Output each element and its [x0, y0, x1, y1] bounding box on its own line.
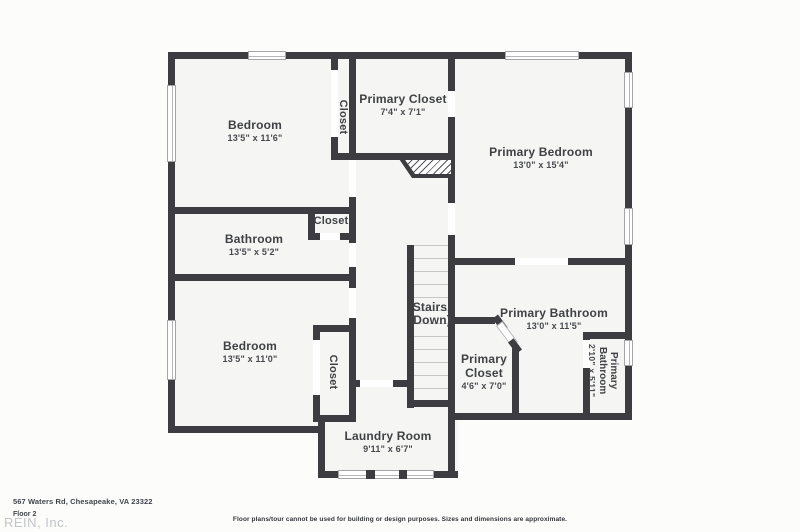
- window: [248, 51, 286, 60]
- stairs-line-2: (Down): [409, 314, 451, 327]
- window: [338, 470, 434, 479]
- room-label-primary-closet-small: Primary Closet 4'6" x 7'0": [449, 352, 519, 392]
- room-dimensions: 13'5" x 11'6": [228, 132, 283, 144]
- wall: [331, 153, 455, 160]
- room-label-primary-closet: Primary Closet 7'4" x 7'1": [359, 92, 447, 118]
- room-name: Bedroom: [228, 118, 283, 132]
- room-label-stairs: Stairs (Down): [409, 301, 451, 327]
- door-opening: [349, 160, 356, 197]
- door-opening: [448, 203, 455, 235]
- room-name: Primary Bedroom: [489, 145, 593, 159]
- room-label-closet-bathroom: Closet: [314, 215, 349, 227]
- room-name: Primary Bathroom: [500, 306, 608, 320]
- window: [624, 208, 633, 245]
- room-name: Primary Closet: [359, 92, 447, 106]
- wall: [313, 325, 320, 340]
- wall: [448, 59, 455, 91]
- wall: [448, 117, 455, 153]
- door-opening: [360, 380, 393, 387]
- room-name: Laundry Room: [344, 429, 431, 443]
- room-name: Primary Closet: [449, 352, 519, 380]
- room-dimensions: 13'5" x 11'0": [223, 353, 278, 365]
- wall: [168, 426, 325, 433]
- room-label-closet-bedroom-2: Closet: [327, 355, 339, 390]
- room-dimensions: 2'10" x 5'11": [587, 328, 597, 414]
- wall: [451, 413, 632, 420]
- wall: [455, 317, 495, 324]
- wall: [448, 175, 455, 203]
- window: [167, 320, 176, 380]
- room-dimensions: 13'0" x 15'4": [489, 159, 593, 171]
- floor-plan: Bedroom 13'5" x 11'6" Closet Primary Clo…: [0, 0, 800, 532]
- room-label-primary-bedroom: Primary Bedroom 13'0" x 15'4": [489, 145, 593, 171]
- room-name: Primary Bathroom: [597, 328, 619, 414]
- room-label-laundry: Laundry Room 9'11" x 6'7": [344, 429, 431, 455]
- door-opening: [320, 233, 340, 240]
- wall: [331, 59, 338, 70]
- room-label-bathroom: Bathroom 13'5" x 5'2": [225, 232, 283, 258]
- floor-area: [175, 413, 325, 426]
- room-name: Bedroom: [223, 339, 278, 353]
- wall: [175, 207, 356, 214]
- wall: [349, 318, 356, 422]
- wall: [568, 258, 632, 265]
- disclaimer-text: Floor plans/tour cannot be used for buil…: [0, 516, 800, 523]
- window: [505, 51, 579, 60]
- door-opening: [349, 288, 356, 318]
- room-label-bedroom-1: Bedroom 13'5" x 11'6": [228, 118, 283, 144]
- wall: [407, 400, 455, 407]
- wall: [318, 419, 325, 478]
- address-text: 567 Waters Rd, Chesapeake, VA 23322: [13, 497, 153, 506]
- room-label-primary-bathroom-small: Primary Bathroom 2'10" x 5'11": [587, 328, 619, 414]
- room-dimensions: 4'6" x 7'0": [449, 380, 519, 392]
- wall: [349, 380, 360, 387]
- wall: [349, 59, 356, 160]
- room-label-closet-top: Closet: [337, 100, 349, 135]
- room-label-bedroom-2: Bedroom 13'5" x 11'0": [223, 339, 278, 365]
- door-opening: [515, 258, 568, 265]
- wall: [455, 258, 515, 265]
- window: [167, 85, 176, 162]
- door-opening: [349, 243, 356, 267]
- room-dimensions: 13'5" x 5'2": [225, 246, 283, 258]
- wall: [340, 233, 356, 240]
- door-opening: [313, 340, 320, 395]
- room-name: Bathroom: [225, 232, 283, 246]
- window: [624, 340, 633, 366]
- wall: [366, 470, 375, 479]
- wall: [318, 415, 356, 422]
- window: [624, 72, 633, 108]
- wall: [175, 274, 356, 281]
- room-dimensions: 9'11" x 6'7": [344, 443, 431, 455]
- room-dimensions: 7'4" x 7'1": [359, 106, 447, 118]
- door-opening: [448, 91, 455, 117]
- wall: [393, 380, 408, 387]
- wall: [399, 470, 407, 479]
